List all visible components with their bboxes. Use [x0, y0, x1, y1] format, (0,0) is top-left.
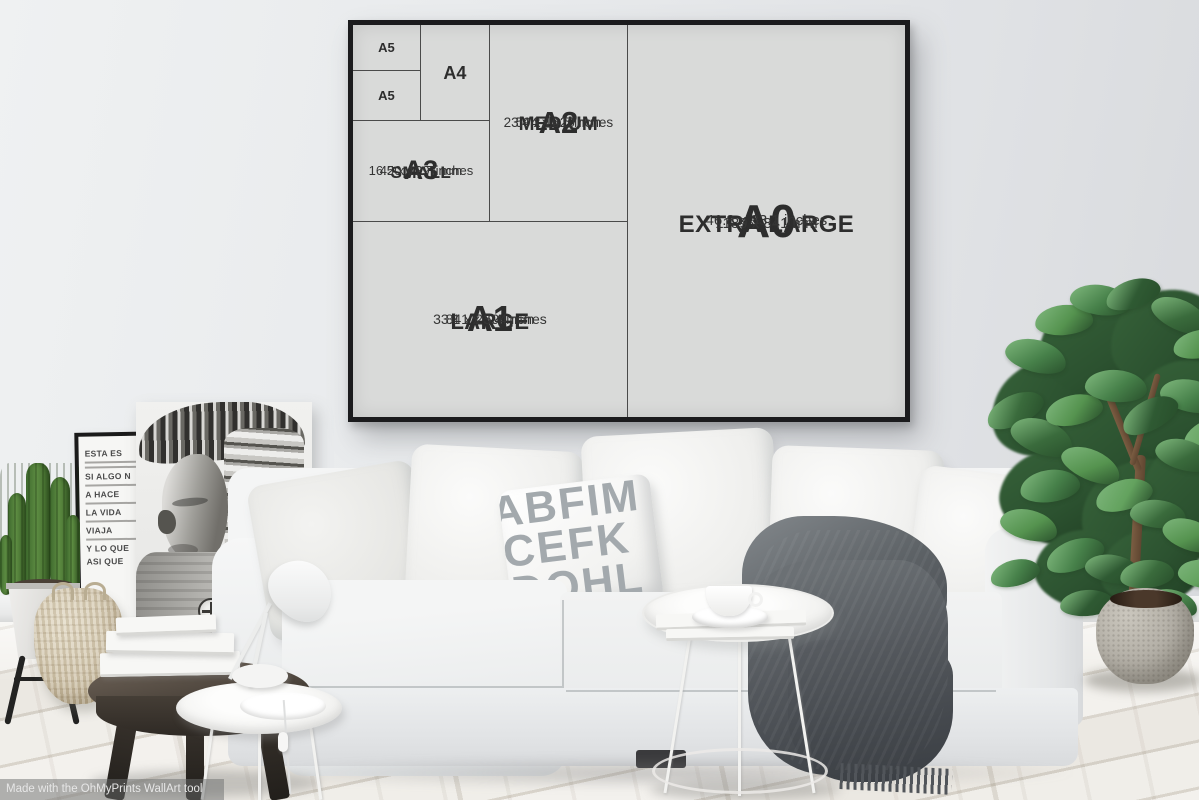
leaf	[1176, 557, 1199, 592]
table-book	[666, 627, 794, 641]
lamp-switch	[278, 732, 288, 752]
size-inches-a2: 23.4 x 16.5 inches	[504, 114, 614, 132]
leaf	[988, 554, 1043, 591]
poster-cell-a2: A2 MEDIUM 594 x 420 mm 23.4 x 16.5 inche…	[490, 25, 628, 222]
coffee-cup-handle	[748, 592, 763, 607]
cushion-seam	[286, 686, 562, 688]
side-table-base-ring	[652, 748, 828, 794]
basket-handle	[84, 582, 106, 600]
paper-size-poster-frame: A5 A5 A4 A3 SMALL 420 x 297 mm 16.5 x 11…	[348, 20, 910, 422]
cushion-seam	[562, 600, 564, 688]
size-name-a4: A4	[443, 64, 466, 82]
poster-cell-a3: A3 SMALL 420 x 297 mm 16.5 x 11.7 inches	[353, 121, 490, 222]
poster-cell-a0: A0 EXTRA LARGE 1189 x 841 mm 46.8 x 33.1…	[628, 25, 905, 417]
cactus-texture	[0, 463, 82, 595]
size-name-a5-top: A5	[378, 41, 395, 54]
paper-size-chart: A5 A5 A4 A3 SMALL 420 x 297 mm 16.5 x 11…	[353, 25, 905, 417]
ficus-plant-foliage-front	[980, 275, 1199, 615]
poster-cell-a1: A1 LARGE 841 x 594 mm 33.1 x 23.4 inches	[353, 222, 628, 417]
plant-pot-soil	[1110, 590, 1182, 608]
portrait-nose	[158, 510, 176, 534]
desk-lamp-base	[232, 664, 288, 688]
plant-stand-leg	[4, 655, 26, 725]
blanket-texture	[748, 530, 948, 770]
poster-cell-a5-top: A5	[353, 25, 421, 71]
book-stack-item	[116, 614, 217, 635]
size-inches-a0: 46.8 x 33.1 inches	[706, 211, 828, 231]
leaf	[997, 503, 1061, 546]
basket-handle	[52, 582, 74, 600]
poster-cell-a4: A4	[421, 25, 490, 121]
living-room-scene: A5 A5 A4 A3 SMALL 420 x 297 mm 16.5 x 11…	[0, 0, 1199, 800]
watermark-text: Made with the OhMyPrints WallArt tool	[6, 779, 202, 800]
watermark-bar: Made with the OhMyPrints WallArt tool	[0, 779, 224, 800]
size-inches-a1: 33.1 x 23.4 inches	[433, 310, 547, 329]
leaf	[1002, 333, 1070, 380]
size-inches-a3: 16.5 x 11.7 inches	[369, 162, 474, 180]
size-name-a5-bottom: A5	[378, 89, 395, 102]
tray-table-leg	[258, 730, 261, 800]
poster-cell-a5-bottom: A5	[353, 71, 421, 121]
